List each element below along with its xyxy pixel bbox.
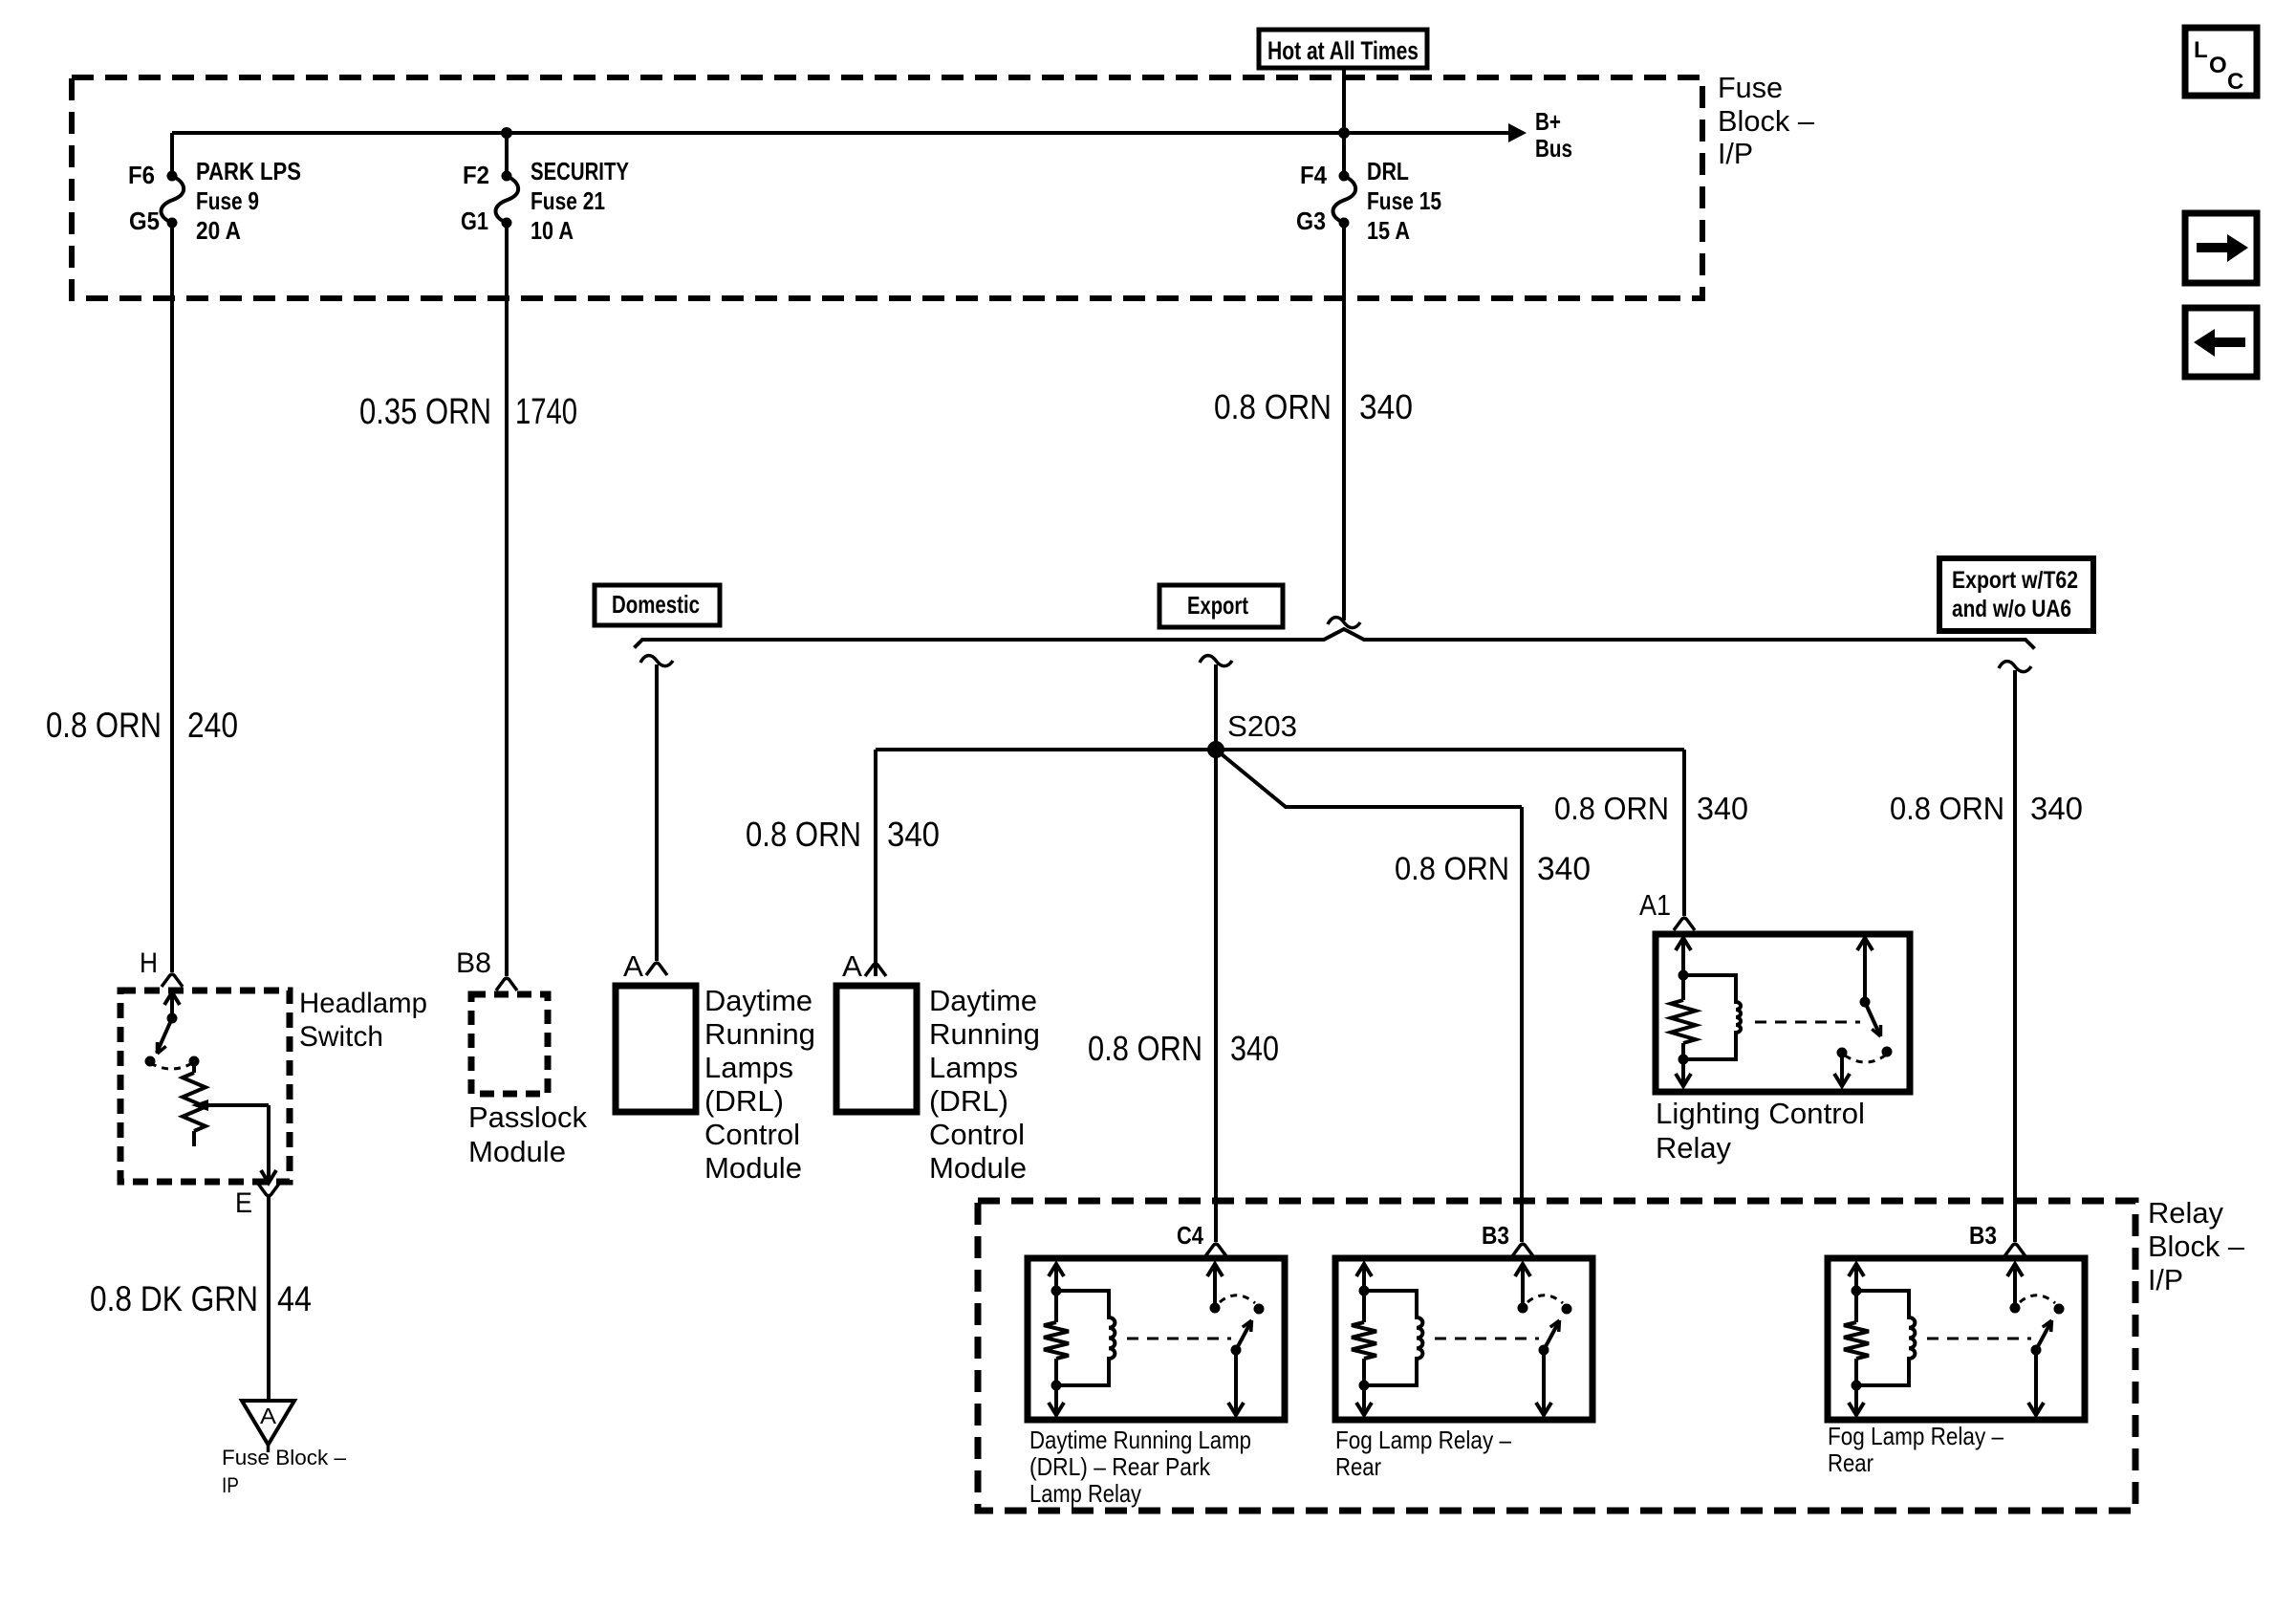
svg-text:I/P: I/P — [1718, 137, 1753, 170]
svg-text:O: O — [2209, 53, 2227, 78]
svg-text:Export w/T62: Export w/T62 — [1952, 567, 2078, 594]
svg-text:B3: B3 — [1482, 1221, 1509, 1250]
svg-text:B+: B+ — [1535, 107, 1561, 136]
svg-text:Daytime: Daytime — [929, 984, 1037, 1017]
svg-text:Rear: Rear — [1335, 1452, 1381, 1481]
svg-text:340: 340 — [1537, 851, 1591, 887]
svg-text:G3: G3 — [1296, 207, 1326, 235]
svg-text:IP: IP — [222, 1473, 239, 1497]
svg-text:A: A — [623, 949, 643, 983]
svg-text:Module: Module — [704, 1151, 802, 1185]
svg-text:0.8 ORN: 0.8 ORN — [46, 706, 162, 745]
svg-text:SECURITY: SECURITY — [531, 157, 629, 185]
svg-text:Daytime: Daytime — [704, 984, 812, 1017]
svg-text:0.8 ORN: 0.8 ORN — [1554, 791, 1669, 826]
svg-text:F4: F4 — [1300, 161, 1327, 189]
svg-text:Module: Module — [929, 1151, 1027, 1185]
svg-text:B3: B3 — [1969, 1221, 1997, 1250]
svg-text:F6: F6 — [128, 161, 155, 189]
svg-text:Relay: Relay — [2148, 1196, 2223, 1230]
svg-text:E: E — [235, 1187, 252, 1219]
svg-text:0.8 ORN: 0.8 ORN — [746, 815, 861, 854]
svg-text:Export: Export — [1187, 591, 1248, 620]
svg-text:Lighting Control: Lighting Control — [1656, 1097, 1865, 1130]
svg-text:340: 340 — [1230, 1029, 1279, 1068]
svg-text:Control: Control — [704, 1118, 800, 1151]
svg-text:Fog Lamp Relay –: Fog Lamp Relay – — [1335, 1426, 1511, 1454]
svg-text:44: 44 — [277, 1279, 312, 1318]
svg-text:and w/o UA6: and w/o UA6 — [1952, 596, 2071, 622]
svg-text:0.8 ORN: 0.8 ORN — [1395, 851, 1509, 887]
svg-text:10 A: 10 A — [531, 216, 574, 245]
svg-text:340: 340 — [2030, 791, 2083, 826]
svg-text:Fuse Block –: Fuse Block – — [222, 1446, 347, 1469]
svg-text:Passlock: Passlock — [468, 1100, 587, 1134]
svg-text:Switch: Switch — [299, 1021, 383, 1053]
svg-text:L: L — [2194, 37, 2208, 63]
svg-text:B8: B8 — [456, 947, 491, 979]
svg-text:(DRL): (DRL) — [704, 1084, 784, 1118]
svg-text:Domestic: Domestic — [612, 590, 700, 619]
svg-text:H: H — [140, 947, 158, 979]
svg-text:Lamps: Lamps — [929, 1051, 1018, 1084]
svg-text:A: A — [842, 949, 862, 983]
svg-text:Bus: Bus — [1535, 134, 1572, 163]
svg-text:Lamp Relay: Lamp Relay — [1029, 1479, 1141, 1508]
svg-text:C: C — [2227, 69, 2243, 95]
svg-text:0.8 ORN: 0.8 ORN — [1214, 387, 1332, 426]
svg-text:Lamps: Lamps — [704, 1051, 793, 1084]
svg-text:0.8 DK GRN: 0.8 DK GRN — [90, 1279, 258, 1318]
svg-text:0.35 ORN: 0.35 ORN — [359, 392, 491, 432]
svg-text:Running: Running — [704, 1017, 815, 1051]
svg-text:Fuse: Fuse — [1718, 71, 1783, 104]
svg-text:(DRL): (DRL) — [929, 1084, 1008, 1118]
svg-text:I/P: I/P — [2148, 1263, 2183, 1296]
svg-text:DRL: DRL — [1367, 157, 1409, 185]
svg-text:Block –: Block – — [2148, 1230, 2245, 1263]
svg-text:C4: C4 — [1177, 1221, 1203, 1250]
svg-text:Control: Control — [929, 1118, 1025, 1151]
svg-text:(DRL) – Rear Park: (DRL) – Rear Park — [1029, 1452, 1211, 1481]
svg-text:Module: Module — [468, 1135, 566, 1168]
svg-text:G5: G5 — [129, 207, 160, 235]
svg-text:PARK LPS: PARK LPS — [196, 157, 301, 185]
svg-text:1740: 1740 — [515, 392, 577, 432]
svg-text:340: 340 — [1359, 387, 1413, 426]
svg-text:0.8 ORN: 0.8 ORN — [1890, 791, 2004, 826]
svg-text:Headlamp: Headlamp — [299, 988, 427, 1019]
svg-text:S203: S203 — [1227, 709, 1297, 743]
svg-text:G1: G1 — [461, 207, 488, 235]
svg-text:Fuse 15: Fuse 15 — [1367, 186, 1441, 215]
svg-text:Fuse 21: Fuse 21 — [531, 186, 605, 215]
svg-text:F2: F2 — [463, 161, 489, 189]
svg-text:15 A: 15 A — [1367, 216, 1410, 245]
svg-text:340: 340 — [887, 815, 940, 854]
svg-text:Rear: Rear — [1828, 1448, 1874, 1477]
svg-text:Running: Running — [929, 1017, 1040, 1051]
svg-text:Relay: Relay — [1656, 1131, 1731, 1165]
svg-text:A: A — [260, 1404, 277, 1428]
svg-text:20 A: 20 A — [196, 216, 241, 245]
svg-text:A1: A1 — [1639, 888, 1671, 922]
svg-text:240: 240 — [187, 706, 238, 745]
svg-text:340: 340 — [1697, 791, 1748, 826]
svg-text:0.8 ORN: 0.8 ORN — [1088, 1029, 1202, 1068]
svg-text:Hot at All Times: Hot at All Times — [1267, 36, 1419, 65]
svg-text:Block –: Block – — [1718, 104, 1815, 138]
svg-text:Fuse 9: Fuse 9 — [196, 186, 259, 215]
svg-text:Fog Lamp Relay –: Fog Lamp Relay – — [1828, 1422, 2004, 1450]
svg-text:Daytime Running Lamp: Daytime Running Lamp — [1029, 1426, 1251, 1454]
